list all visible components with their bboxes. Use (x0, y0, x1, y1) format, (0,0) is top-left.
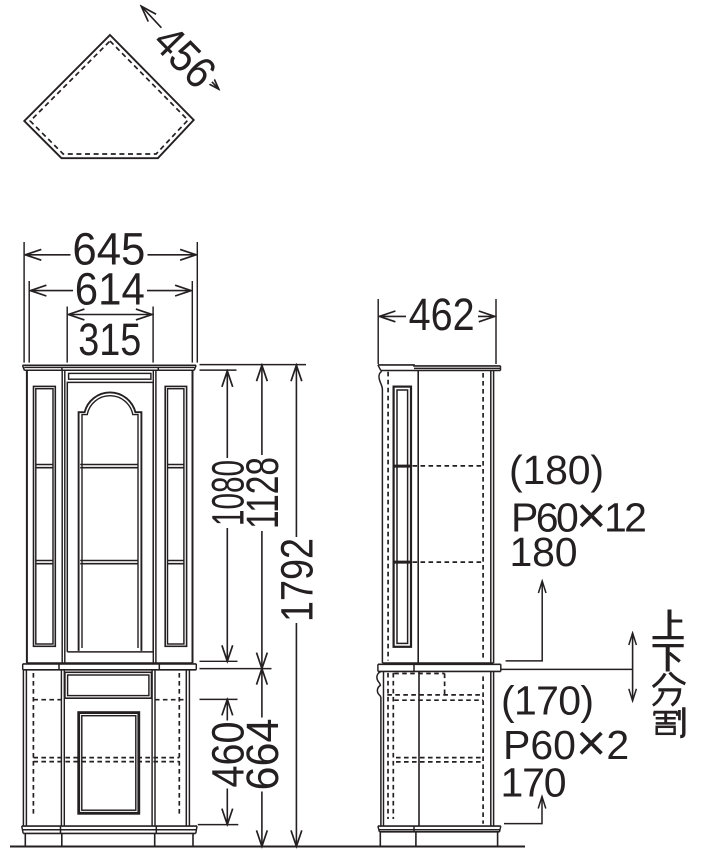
svg-text:664: 664 (237, 719, 288, 791)
svg-text:1128: 1128 (237, 457, 288, 529)
svg-text:462: 462 (409, 289, 475, 340)
svg-text:614: 614 (75, 264, 145, 315)
svg-text:170: 170 (501, 760, 567, 806)
svg-text:1792: 1792 (272, 538, 323, 622)
svg-text:315: 315 (78, 314, 141, 365)
svg-text:180: 180 (510, 529, 578, 575)
